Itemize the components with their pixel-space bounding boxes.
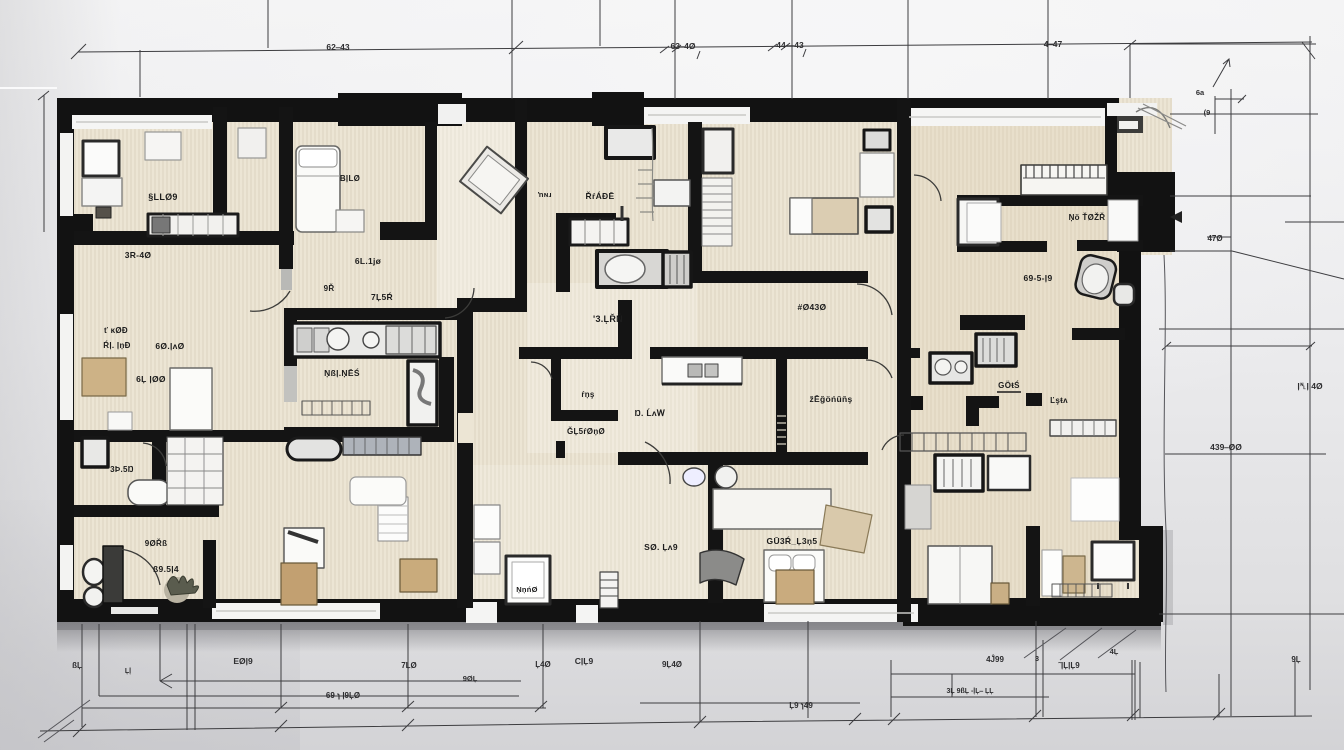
svg-text:Ŋ. ĹʌᎳ: Ŋ. ĹʌᎳ [635,408,666,418]
svg-text:4Ļ: 4Ļ [1110,647,1119,656]
svg-text:47Ø: 47Ø [1207,234,1222,243]
svg-text:§LLØ9: §LLØ9 [148,192,178,202]
svg-text:ß9.5ļ4: ß9.5ļ4 [153,564,179,574]
svg-text:Ļ9 ɿ49: Ļ9 ɿ49 [789,701,813,710]
svg-text:ĞĻ5ŕØņØ: ĞĻ5ŕØņØ [567,427,605,436]
svg-text:6L.1jø: 6L.1jø [355,256,382,266]
svg-text:ť ĸØĐ: ť ĸØĐ [104,326,128,335]
svg-text:CļĻ9: CļĻ9 [575,656,594,666]
svg-text:7Ļ5Ŕ: 7Ļ5Ŕ [371,292,393,302]
svg-text:63⎯4Ø: 63⎯4Ø [670,41,695,51]
svg-text:3: 3 [1035,654,1039,663]
svg-text:9ØĻ: 9ØĻ [463,674,478,683]
svg-text:69 ɿ ļ9ĻØ: 69 ɿ ļ9ĻØ [326,691,360,700]
svg-text:ŘŕÁĐĒ: ŘŕÁĐĒ [586,190,615,201]
svg-text:EØļ9: EØļ9 [233,656,253,666]
svg-text:ŕņş: ŕņş [581,390,595,399]
svg-text:BļLØ: BļLØ [340,174,360,183]
svg-text:69-5-ļ9: 69-5-ļ9 [1023,273,1052,283]
svg-text:62⎯43: 62⎯43 [326,42,349,52]
svg-text:439⎯ØØ: 439⎯ØØ [1210,442,1242,452]
svg-text:Ņßļ.ŅĒŚ: Ņßļ.ŅĒŚ [324,367,360,378]
svg-text:Ŕļ. ļņĐ: Ŕļ. ļņĐ [103,341,130,350]
svg-text:#Ø43Ø: #Ø43Ø [798,302,827,312]
svg-text:Ľşŧʌ: Ľşŧʌ [1050,396,1068,405]
svg-text:6Ļ ļØØ: 6Ļ ļØØ [136,374,166,384]
svg-text:žĒğöńŭňş: žĒğöńŭňş [809,394,852,404]
svg-text:SØ. Ļʌ9: SØ. Ļʌ9 [644,542,678,552]
svg-text:'3.ĻŘŇ: '3.ĻŘŇ [593,313,623,324]
svg-text:Ļ4Ø: Ļ4Ø [535,660,551,669]
svg-text:ßĻ: ßĻ [72,661,82,670]
svg-text:44⎯⎯43: 44⎯⎯43 [776,40,804,50]
svg-text:˜ļĻļĻ9: ˜ļĻļĻ9 [1057,661,1080,670]
svg-text:Ņö ŤØŽŘ: Ņö ŤØŽŘ [1069,213,1106,222]
svg-text:6Ø.ļʌØ: 6Ø.ļʌØ [155,341,184,351]
svg-text:3Þ.5Ŋ: 3Þ.5Ŋ [110,465,134,474]
svg-text:Ļļ: Ļļ [125,668,131,675]
svg-text:(9: (9 [1204,108,1211,117]
svg-text:9ØŘß: 9ØŘß [145,539,168,548]
svg-text:7ĻØ: 7ĻØ [401,661,417,670]
svg-text:GŪ3Ŕ_Ļ3ņ5: GŪ3Ŕ_Ļ3ņ5 [767,536,818,546]
svg-text:9Ř: 9Ř [324,284,335,293]
svg-text:3R-4Ø: 3R-4Ø [125,250,152,260]
svg-text:ŅņńØ: ŅņńØ [516,585,538,594]
svg-text:4Ĵ99: 4Ĵ99 [986,655,1004,664]
svg-text:9Ļ: 9Ļ [1291,655,1300,664]
svg-text:3Ļ 9ßĻ -ļĻ⎯ ĻĻ: 3Ļ 9ßĻ -ļĻ⎯ ĻĻ [946,688,994,695]
svg-text:9Ļ4Ø: 9Ļ4Ø [662,660,682,669]
svg-text:ļ␤ļ 4Ø: ļ␤ļ 4Ø [1297,381,1323,391]
svg-text:6a: 6a [1196,88,1205,97]
svg-text:GÖŧŚ: GÖŧŚ [998,381,1020,390]
svg-text:4⎯47: 4⎯47 [1044,39,1063,49]
svg-text:ŉɴɹ: ŉɴɹ [537,190,552,199]
